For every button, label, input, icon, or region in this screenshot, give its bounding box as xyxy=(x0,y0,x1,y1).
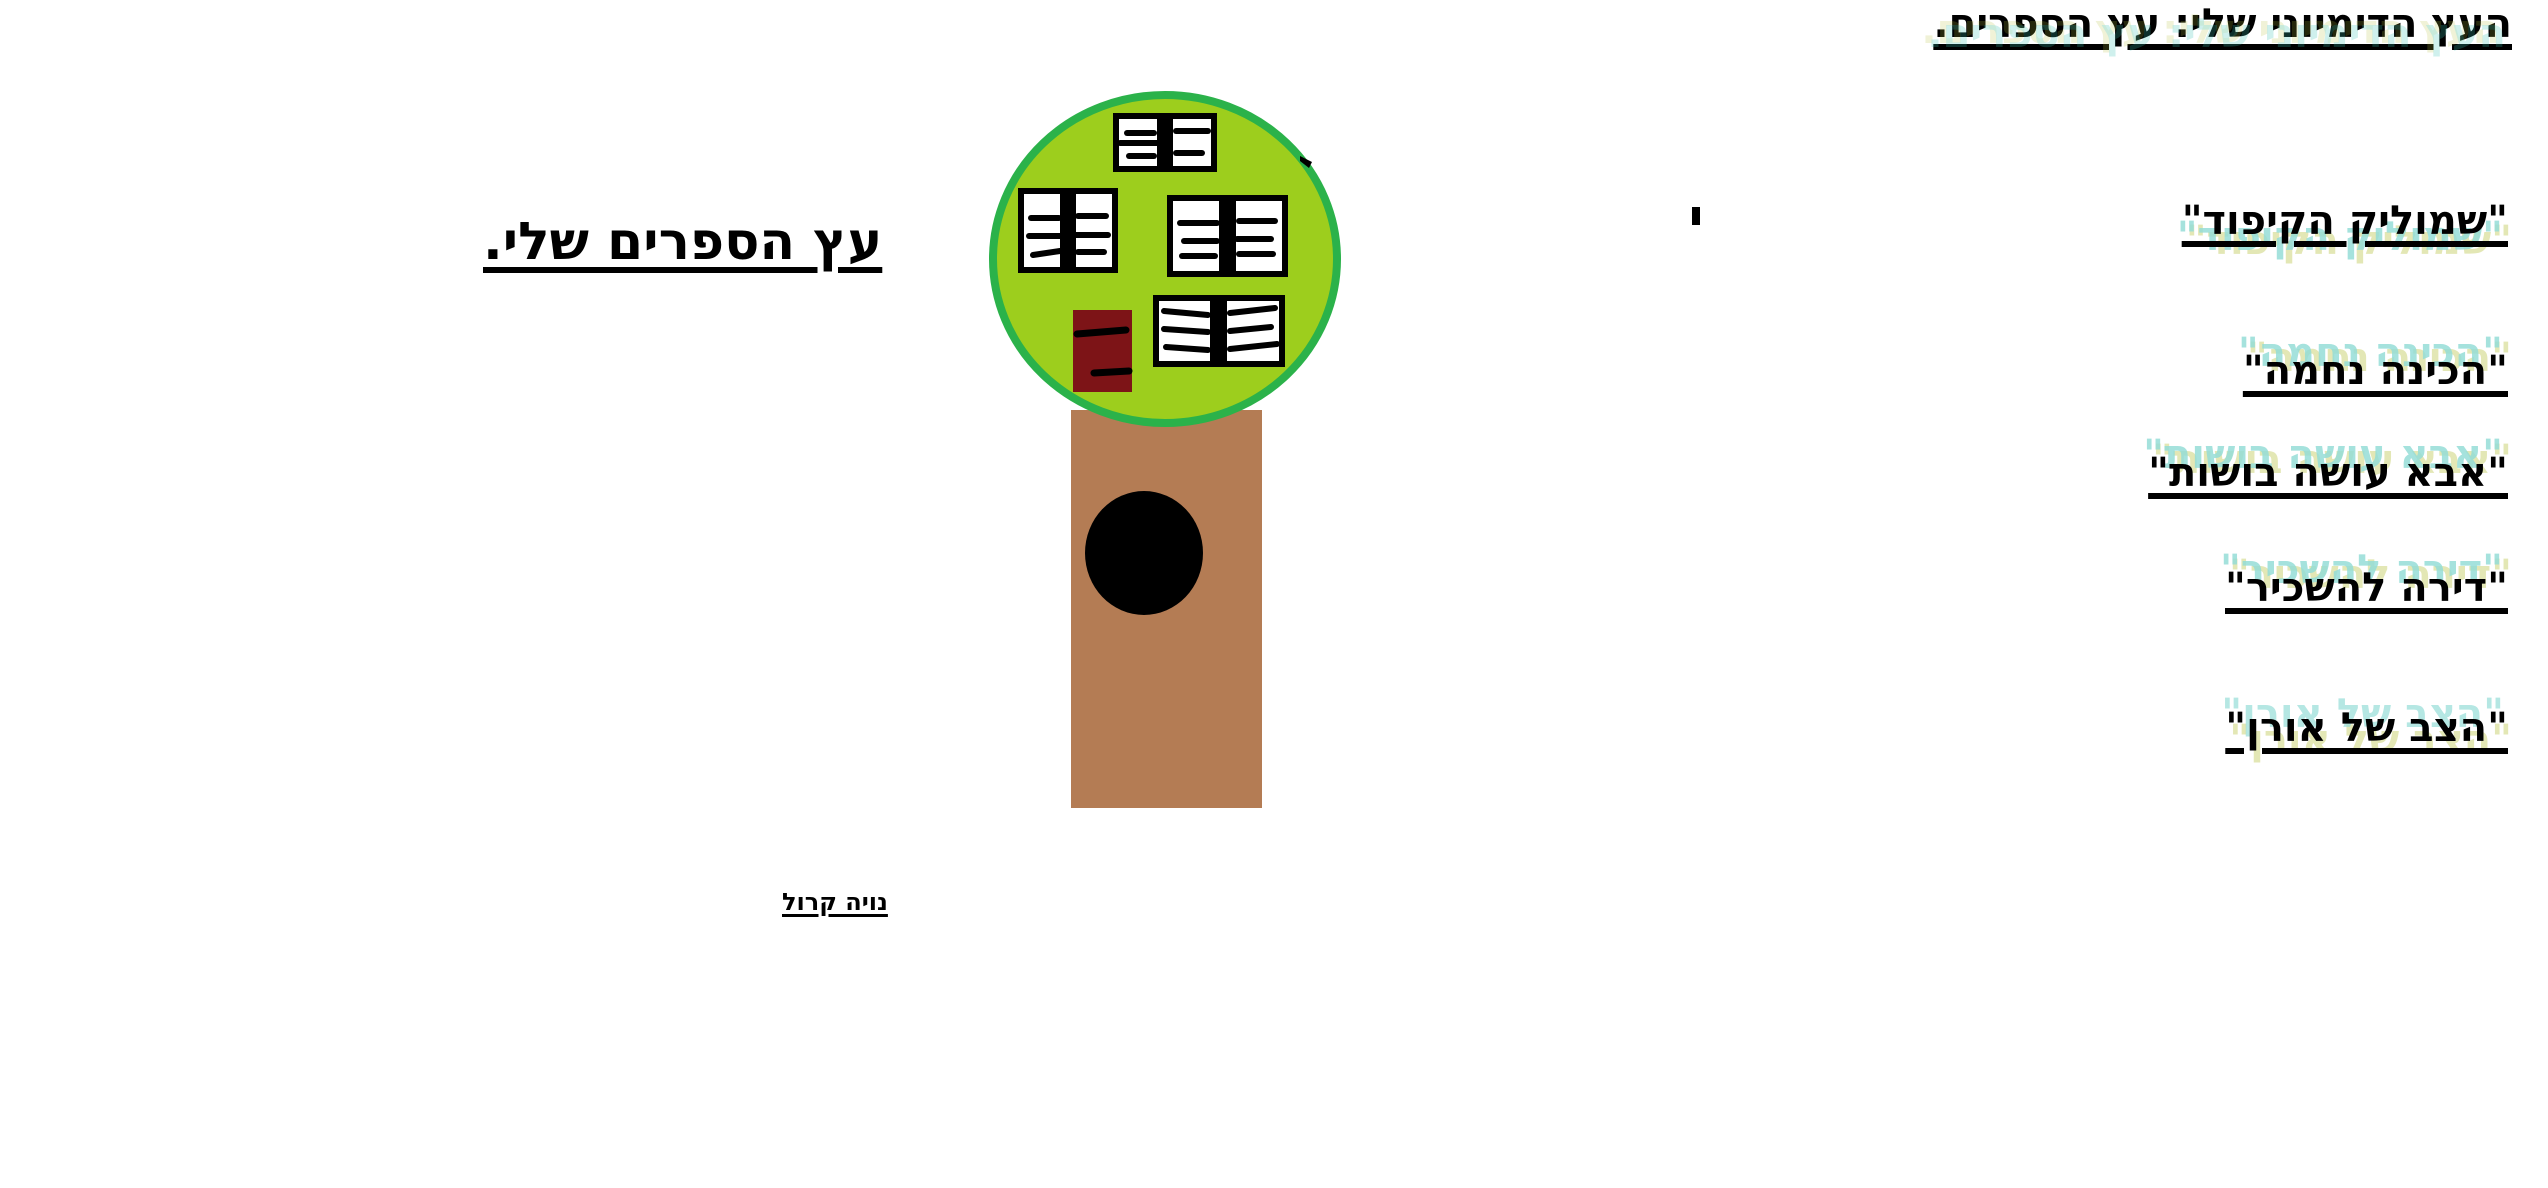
page-title-text: העץ הדימיוני שלי: עץ הספרים. xyxy=(1933,1,2512,47)
book-list-item: "הצב של אורן" "הצב של אורן" xyxy=(2225,704,2508,752)
book-list-item: "אבא עושה בושות" "אבא עושה בושות" xyxy=(2148,449,2508,497)
open-book-bottom xyxy=(1156,295,1282,367)
book-spine xyxy=(1060,188,1076,273)
book-title-text: "דירה להשכיר" xyxy=(2225,565,2508,611)
stray-ink-mark xyxy=(1692,207,1700,225)
book-spine xyxy=(1219,195,1236,277)
book-tree-drawing xyxy=(950,80,1350,820)
book-title-text: "אבא עושה בושות" xyxy=(2148,450,2508,496)
book-spine xyxy=(1210,295,1227,367)
red-book-cover xyxy=(1073,310,1132,392)
book-title-text: "הצב של אורן" xyxy=(2225,705,2508,751)
open-book-top xyxy=(1116,113,1214,172)
book-list-item: "דירה להשכיר" "דירה להשכיר" xyxy=(2225,564,2508,612)
open-book-right xyxy=(1170,195,1285,277)
document-page: { "document": { "title": "העץ הדימיוני ש… xyxy=(0,0,2548,1188)
book-list-item: "הכינה נחמה" "הכינה נחמה" xyxy=(2243,347,2508,395)
book-title-text: "שמוליק הקיפוד" xyxy=(2182,198,2508,244)
closed-red-book xyxy=(1073,310,1132,392)
page-title: העץ הדימיוני שלי: עץ הספרים. העץ הדימיונ… xyxy=(1933,0,2512,48)
tree-caption-heading: עץ הספרים שלי. xyxy=(483,211,882,273)
author-name: נויה קרול xyxy=(782,888,888,916)
book-list-item: "שמוליק הקיפוד" "שמוליק הקיפוד" xyxy=(2182,197,2508,245)
open-book-left xyxy=(1021,188,1115,273)
trunk-hole xyxy=(1085,491,1203,615)
book-title-text: "הכינה נחמה" xyxy=(2243,348,2508,394)
